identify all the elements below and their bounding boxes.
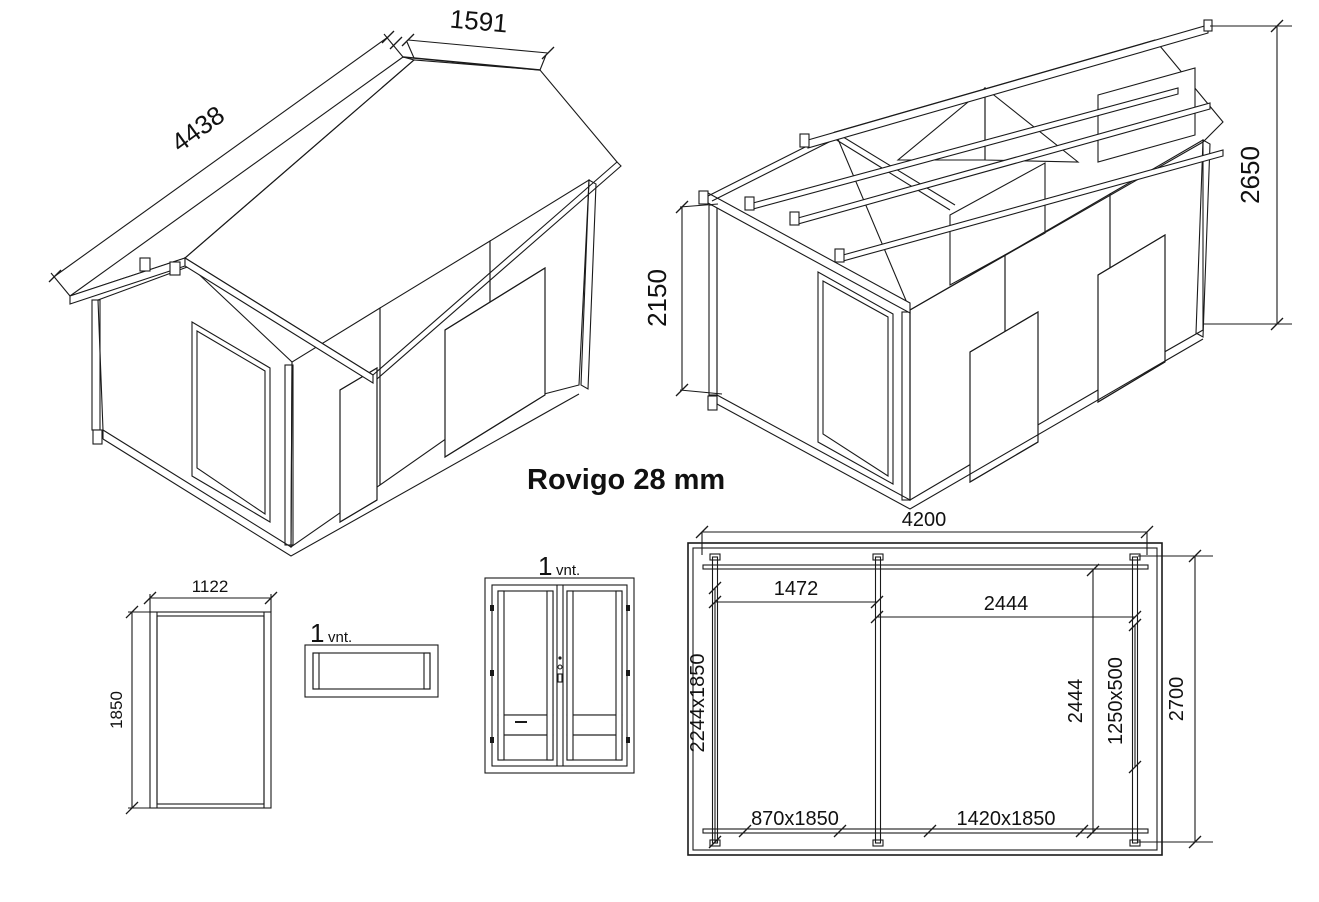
door-double-label: 1420x1850 bbox=[957, 808, 1056, 830]
dim-panel-width: 1122 bbox=[144, 577, 277, 612]
door-outer-frame bbox=[485, 578, 634, 773]
small-window-drawing: 1 vnt. bbox=[290, 600, 470, 710]
roof-length-label: 4438 bbox=[165, 100, 229, 158]
door-qty: 1 bbox=[538, 551, 552, 581]
opening-left-wall-label: 2244x1850 bbox=[687, 654, 709, 753]
floor-plan-drawing: 4200 1472 2444 2244x1850 2444 1250x500 bbox=[670, 495, 1319, 900]
total-length-label: 4200 bbox=[902, 509, 947, 531]
panel-width-label: 1122 bbox=[192, 577, 229, 596]
roof-right-plane bbox=[185, 60, 617, 375]
frame-structure-view: 2150 2650 bbox=[650, 0, 1310, 525]
drawing-title: Rovigo 28 mm bbox=[527, 464, 827, 497]
window-inner-frame bbox=[313, 653, 430, 689]
door-inner-frame bbox=[492, 585, 627, 766]
side-wall bbox=[910, 140, 1210, 500]
drawing-sheet: 4438 1591 bbox=[0, 0, 1319, 902]
dim-total-width: 2700 bbox=[1138, 550, 1213, 848]
door-leaf-right bbox=[567, 591, 622, 760]
panel-height-label: 1850 bbox=[107, 691, 126, 729]
dim-bay-right: 2444 bbox=[871, 593, 1141, 623]
front-door-opening bbox=[192, 322, 270, 522]
purlin-end-1 bbox=[140, 258, 150, 271]
door-unit: vnt. bbox=[556, 562, 580, 579]
roof-slope-label: 1591 bbox=[449, 4, 509, 39]
wall-plate bbox=[708, 193, 910, 313]
double-door-drawing: 1 vnt. bbox=[460, 545, 660, 785]
purlin-end-2 bbox=[170, 262, 180, 275]
dim-opening-left-wall: 2244x1850 bbox=[687, 582, 721, 848]
dim-panel-height: 1850 bbox=[107, 606, 150, 814]
door-single-label: 870x1850 bbox=[751, 808, 839, 830]
bay-right-label: 2444 bbox=[984, 593, 1029, 615]
roof-left-plane bbox=[70, 57, 414, 296]
total-width-label: 2700 bbox=[1166, 677, 1188, 722]
corner-logs-left bbox=[709, 205, 717, 395]
door-handle bbox=[558, 656, 562, 682]
front-door-opening bbox=[818, 272, 893, 484]
door-leaf-left bbox=[498, 591, 553, 760]
corner-logs-near bbox=[902, 312, 910, 500]
dim-roof-length: 4438 bbox=[49, 31, 403, 296]
wall-height-label: 2150 bbox=[642, 269, 672, 327]
ridge-height-label: 2650 bbox=[1235, 146, 1265, 204]
corner-logs-far bbox=[581, 180, 596, 389]
small-window-qty: 1 bbox=[310, 618, 324, 648]
panel-slats bbox=[157, 616, 264, 804]
bay-left-label: 1472 bbox=[774, 578, 819, 600]
dim-inner-length: 2444 bbox=[1065, 564, 1099, 838]
window-label: 1250x500 bbox=[1105, 657, 1127, 745]
slatted-panel-drawing: 1122 1850 bbox=[100, 570, 290, 830]
dim-wall-height: 2150 bbox=[642, 201, 722, 396]
dim-ridge-height: 2650 bbox=[1203, 20, 1292, 330]
small-window-unit: vnt. bbox=[328, 629, 352, 646]
roof-fascia-left bbox=[70, 258, 185, 304]
panel-frame bbox=[150, 612, 271, 808]
dim-bay-left: 1472 bbox=[709, 578, 883, 608]
dim-window: 1250x500 bbox=[1105, 619, 1141, 773]
inner-length-label: 2444 bbox=[1065, 679, 1087, 724]
